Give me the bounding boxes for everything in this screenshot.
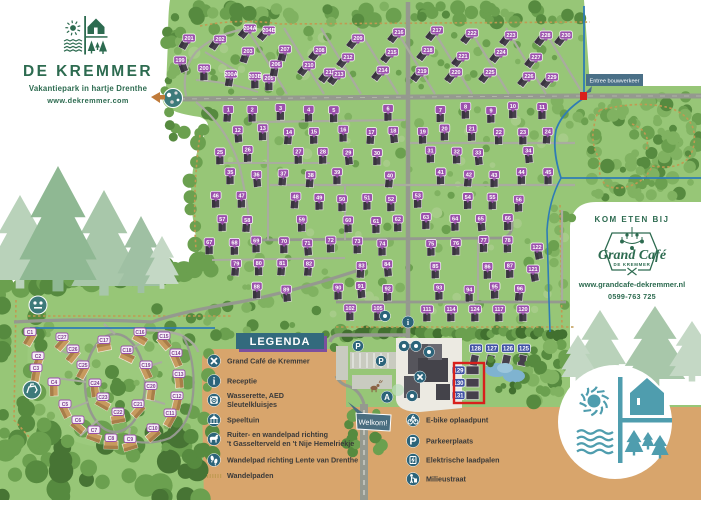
svg-text:10: 10 [510,104,516,110]
svg-text:13: 13 [260,126,266,132]
svg-text:21: 21 [469,127,475,133]
svg-text:59: 59 [299,217,305,223]
svg-text:www.grandcafe-dekremmer.nl: www.grandcafe-dekremmer.nl [578,280,685,289]
svg-text:203: 203 [243,49,252,55]
svg-text:Sleutelkluisjes: Sleutelkluisjes [227,400,277,409]
svg-text:43: 43 [491,173,497,179]
svg-text:95: 95 [492,284,498,290]
svg-text:80: 80 [256,261,262,267]
svg-text:209: 209 [353,36,362,42]
svg-text:37: 37 [280,171,286,177]
svg-text:89: 89 [283,287,289,293]
svg-text:C21: C21 [133,402,142,408]
svg-text:C27: C27 [57,335,66,341]
svg-text:223: 223 [506,33,515,39]
svg-text:124: 124 [470,307,480,313]
svg-text:58: 58 [244,218,250,224]
svg-text:C23: C23 [98,395,107,401]
svg-text:94: 94 [466,288,473,294]
svg-text:82: 82 [306,262,312,268]
svg-text:62: 62 [395,217,401,223]
svg-text:C13: C13 [174,372,183,378]
svg-text:217: 217 [432,28,441,34]
svg-text:39: 39 [334,170,340,176]
svg-text:85: 85 [432,264,438,270]
svg-text:'t Gasselterveld en 't Nije He: 't Gasselterveld en 't Nije Hemelriekje [227,439,354,448]
svg-text:201: 201 [184,36,193,42]
svg-text:65: 65 [478,217,484,223]
svg-text:www.dekremmer.com: www.dekremmer.com [46,96,129,105]
svg-text:63: 63 [423,215,429,221]
svg-text:84: 84 [384,262,391,268]
svg-text:31: 31 [427,148,433,154]
svg-text:Wandelpaden: Wandelpaden [227,471,273,480]
svg-text:16: 16 [340,128,346,134]
svg-text:90: 90 [335,285,341,291]
svg-text:7: 7 [439,108,442,114]
svg-text:225: 225 [485,70,494,76]
svg-text:P: P [409,436,416,448]
svg-text:C20: C20 [146,384,155,390]
svg-text:42: 42 [466,172,472,178]
svg-text:111: 111 [423,307,432,313]
svg-text:114: 114 [446,307,456,313]
svg-text:C5: C5 [62,402,69,408]
svg-text:46: 46 [213,194,219,200]
svg-text:C12: C12 [172,394,181,400]
svg-text:61: 61 [373,219,379,225]
svg-text:206: 206 [271,62,280,68]
svg-text:A: A [384,393,390,402]
svg-text:96: 96 [517,287,523,293]
svg-text:Speeltuin: Speeltuin [227,416,259,425]
svg-text:29: 29 [345,151,351,157]
svg-text:74: 74 [379,241,386,247]
svg-text:DE KREMMER: DE KREMMER [23,63,153,80]
svg-text:49: 49 [316,196,322,202]
svg-text:Elektrische laadpalen: Elektrische laadpalen [426,456,500,465]
svg-text:218: 218 [423,48,432,54]
svg-text:20: 20 [441,126,447,132]
svg-text:200A: 200A [224,72,237,78]
svg-text:219: 219 [417,69,426,75]
svg-text:KOM ETEN BIJ: KOM ETEN BIJ [595,215,670,224]
svg-text:Milieustraat: Milieustraat [426,475,467,484]
svg-text:C11: C11 [166,411,175,417]
svg-text:93: 93 [436,286,442,292]
svg-text:C24: C24 [90,381,99,387]
svg-text:36: 36 [253,173,259,179]
svg-text:57: 57 [219,217,225,223]
svg-text:228: 228 [541,33,550,39]
svg-text:52: 52 [388,197,394,203]
svg-text:199: 199 [175,58,184,64]
svg-text:55: 55 [489,195,495,201]
svg-text:1: 1 [227,108,230,114]
svg-text:23: 23 [520,130,526,136]
svg-text:120: 120 [518,307,527,313]
svg-text:92: 92 [385,287,391,293]
svg-text:216: 216 [394,30,403,36]
svg-text:72: 72 [328,238,334,244]
svg-text:44: 44 [518,170,525,176]
svg-text:70: 70 [281,239,287,245]
svg-text:81: 81 [279,261,285,267]
svg-text:C8: C8 [108,436,115,442]
svg-text:26: 26 [245,148,251,154]
svg-text:53: 53 [415,194,421,200]
svg-text:66: 66 [505,216,511,222]
svg-text:E-bike oplaadpunt: E-bike oplaadpunt [426,416,489,425]
svg-text:227: 227 [531,55,540,61]
svg-text:48: 48 [292,194,298,200]
svg-text:C6: C6 [75,418,82,424]
svg-text:213: 213 [334,72,343,78]
svg-text:76: 76 [453,241,459,247]
svg-text:34: 34 [525,149,532,155]
svg-text:77: 77 [480,238,486,244]
svg-text:C7: C7 [91,428,98,434]
svg-text:215: 215 [387,50,396,56]
svg-text:51: 51 [364,196,370,202]
svg-text:C3: C3 [33,366,40,372]
svg-text:71: 71 [304,241,310,247]
svg-text:214: 214 [378,68,388,74]
svg-text:203B: 203B [248,74,261,80]
svg-text:DE KREMMER: DE KREMMER [613,262,650,267]
svg-text:33: 33 [475,151,481,157]
svg-text:25: 25 [217,150,223,156]
svg-text:226: 226 [524,74,533,80]
svg-text:200: 200 [199,66,208,72]
svg-text:i: i [213,377,216,388]
svg-text:8: 8 [464,105,467,111]
svg-text:Vakantiepark in hartje Drenthe: Vakantiepark in hartje Drenthe [29,84,148,93]
svg-text:75: 75 [428,242,434,248]
svg-text:3: 3 [279,106,282,112]
svg-text:54: 54 [465,195,472,201]
svg-text:24: 24 [545,130,552,136]
svg-text:C18: C18 [122,348,131,354]
svg-text:102: 102 [345,306,354,312]
svg-text:221: 221 [458,54,467,60]
svg-text:C2: C2 [35,354,42,360]
svg-text:78: 78 [504,238,510,244]
svg-text:Wasserette, AED: Wasserette, AED [227,391,284,400]
svg-text:86: 86 [484,265,490,271]
svg-text:Wandelpad richting Lente van D: Wandelpad richting Lente van Drenthe [227,456,358,465]
svg-text:117: 117 [494,307,503,313]
svg-text:9: 9 [489,109,492,115]
svg-text:35: 35 [227,170,233,176]
svg-text:C14: C14 [171,351,180,357]
svg-text:Entree bouwverkeer: Entree bouwverkeer [589,79,639,85]
svg-text:50: 50 [339,197,345,203]
svg-text:45: 45 [545,170,551,176]
svg-text:208: 208 [315,48,324,54]
svg-text:105: 105 [373,306,382,312]
svg-text:41: 41 [438,170,444,176]
svg-text:229: 229 [547,75,556,81]
svg-text:128: 128 [471,347,482,353]
svg-text:19: 19 [420,130,426,136]
svg-text:230: 230 [561,33,570,39]
svg-text:C26: C26 [68,347,77,353]
svg-text:Grand Café de Kremmer: Grand Café de Kremmer [227,357,310,366]
svg-text:69: 69 [253,238,259,244]
svg-text:14: 14 [286,130,293,136]
svg-text:LEGENDA: LEGENDA [250,336,311,348]
svg-text:205: 205 [264,76,273,82]
svg-text:73: 73 [354,239,360,245]
svg-text:222: 222 [467,31,476,37]
svg-text:220: 220 [451,70,460,76]
svg-text:122: 122 [532,245,541,251]
svg-text:40: 40 [387,173,393,179]
svg-text:C17: C17 [99,338,108,344]
svg-text:30: 30 [374,151,380,157]
svg-text:P: P [378,357,384,366]
svg-text:88: 88 [254,284,260,290]
svg-text:C10: C10 [148,426,157,432]
svg-text:12: 12 [235,128,241,134]
svg-text:121: 121 [528,267,537,273]
svg-text:2: 2 [251,108,254,114]
svg-text:Ruiter- en wandelpad richting: Ruiter- en wandelpad richting [227,430,328,439]
svg-text:Receptie: Receptie [227,377,257,386]
svg-text:224: 224 [496,50,506,56]
svg-text:79: 79 [233,262,239,268]
svg-text:C19: C19 [141,363,150,369]
svg-text:212: 212 [343,55,352,61]
svg-text:60: 60 [345,218,351,224]
svg-text:C4: C4 [51,380,58,386]
svg-text:27: 27 [295,150,301,156]
svg-text:6: 6 [387,107,390,113]
svg-text:202: 202 [215,37,224,43]
svg-text:47: 47 [238,194,244,200]
svg-text:11: 11 [539,105,545,111]
svg-text:Parkeerplaats: Parkeerplaats [426,437,473,446]
svg-text:28: 28 [320,150,326,156]
svg-text:C22: C22 [113,410,122,416]
svg-text:C9: C9 [127,437,134,443]
svg-text:127: 127 [487,347,498,353]
svg-text:C15: C15 [159,334,168,340]
svg-text:17: 17 [368,130,374,136]
svg-text:P: P [355,342,361,351]
svg-text:210: 210 [304,63,313,69]
svg-text:0599-763 725: 0599-763 725 [608,292,656,301]
svg-text:126: 126 [503,347,514,353]
svg-text:Welkom!: Welkom! [358,417,387,427]
svg-text:87: 87 [507,264,513,270]
svg-text:5: 5 [332,108,335,114]
svg-text:125: 125 [519,347,530,353]
svg-text:204B: 204B [262,28,275,34]
svg-text:56: 56 [516,198,522,204]
svg-text:C1: C1 [27,330,34,336]
svg-text:64: 64 [452,217,459,223]
svg-text:Grand Café: Grand Café [598,248,667,263]
svg-text:15: 15 [311,130,317,136]
svg-text:C16: C16 [135,330,144,336]
svg-text:204A: 204A [243,26,256,32]
svg-text:67: 67 [206,240,212,246]
svg-text:18: 18 [390,129,396,135]
svg-text:68: 68 [231,241,237,247]
svg-text:207: 207 [280,47,289,53]
svg-text:91: 91 [358,284,364,290]
svg-text:22: 22 [496,130,502,136]
svg-text:83: 83 [358,264,364,270]
svg-text:38: 38 [308,173,314,179]
svg-text:C25: C25 [78,363,87,369]
svg-text:32: 32 [454,149,460,155]
